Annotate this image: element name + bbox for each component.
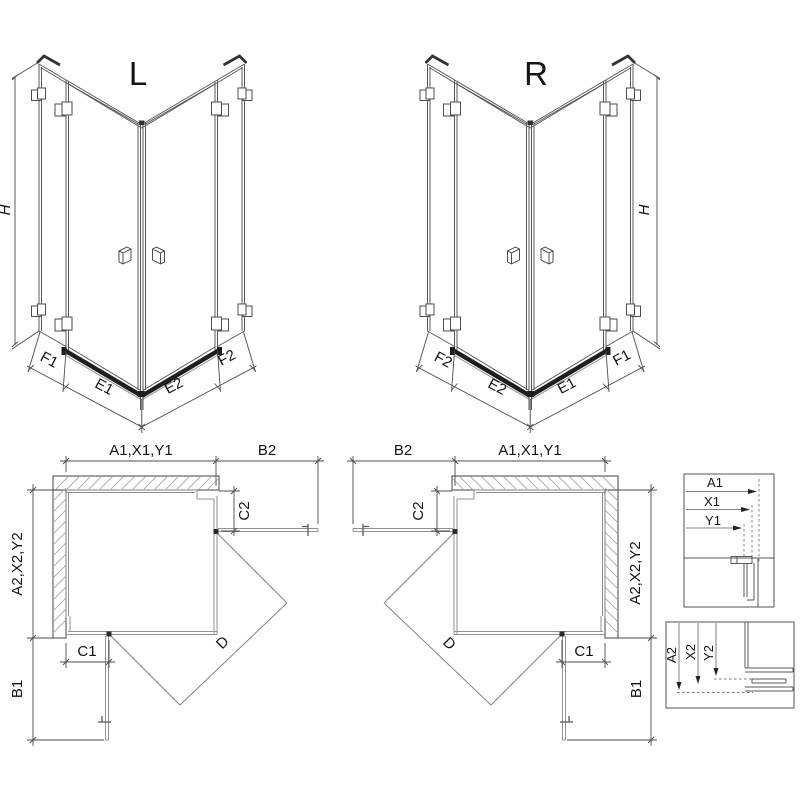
detail-depth-profile-section: [745, 622, 793, 691]
dim-label-b2-plan-left: B2: [258, 442, 276, 459]
dim-label-e2-right: E2: [485, 375, 509, 399]
detail-depth-reference-dashes: [677, 679, 753, 693]
dim-label-e2-left: E2: [162, 374, 186, 398]
dim-label-c2-plan-right: C2: [410, 501, 427, 520]
detail-label-y2: Y2: [701, 645, 716, 661]
detail-label-y1: Y1: [705, 513, 721, 528]
dim-label-a1-plan-right: A1,X1,Y1: [498, 442, 561, 459]
dim-label-f1-left: F1: [37, 348, 60, 371]
dim-label-b1-plan-left: B1: [9, 680, 26, 698]
view-title-left: L: [129, 55, 147, 92]
plan-view-left: A1,X1,Y1 B2 C2 A2,X2,Y2 B1 C1 D: [9, 442, 324, 746]
perspective-view-left: L H F1 E1 E2 F2: [0, 55, 257, 433]
detail-width-frame: [684, 474, 774, 607]
dim-label-f1-right: F1: [610, 346, 633, 369]
detail-width-adjustment: A1 X1 Y1: [684, 474, 774, 607]
detail-width-profile-section: [684, 557, 774, 607]
dim-label-c1-plan-left: C1: [77, 643, 96, 660]
detail-label-a2: A2: [664, 647, 679, 663]
dim-label-height-left: H: [0, 204, 14, 215]
detail-label-x1: X1: [704, 494, 720, 509]
detail-label-a1: A1: [707, 475, 723, 490]
shower-enclosure-technical-drawing: L H F1 E1 E2 F2 R H F2 E2 E1 F1 A1,X1,Y1…: [0, 0, 800, 800]
dim-label-a1-plan-left: A1,X1,Y1: [109, 442, 172, 459]
detail-depth-frame: [666, 622, 794, 708]
dim-label-height-right: H: [636, 204, 653, 215]
plan-left-geometry: [53, 456, 324, 740]
dim-label-b2-plan-right: B2: [394, 442, 412, 459]
dim-label-b1-plan-right: B1: [628, 680, 645, 698]
plan-right-geometry: [347, 456, 618, 740]
perspective-right-geometry: [416, 56, 661, 433]
dim-label-d-plan-left: D: [213, 633, 233, 653]
perspective-view-right: R H F2 E2 E1 F1: [416, 55, 661, 433]
dim-label-a2-plan-left: A2,X2,Y2: [9, 532, 26, 595]
drawing-canvas: L H F1 E1 E2 F2 R H F2 E2 E1 F1 A1,X1,Y1…: [0, 0, 800, 800]
plan-right-side-dimensions: [567, 484, 657, 746]
dim-label-d-plan-right: D: [439, 634, 459, 654]
perspective-left-geometry: [12, 56, 257, 433]
dim-label-c1-plan-right: C1: [574, 643, 593, 660]
plan-view-right: B2 A1,X1,Y1 C2 A2,X2,Y2 B1 C1 D: [347, 442, 657, 746]
dim-label-c2-plan-left: C2: [236, 501, 253, 520]
detail-label-x2: X2: [683, 644, 698, 660]
detail-depth-adjustment: A2 X2 Y2: [664, 622, 794, 708]
view-title-right: R: [524, 55, 548, 92]
dim-label-a2-plan-right: A2,X2,Y2: [627, 541, 644, 604]
